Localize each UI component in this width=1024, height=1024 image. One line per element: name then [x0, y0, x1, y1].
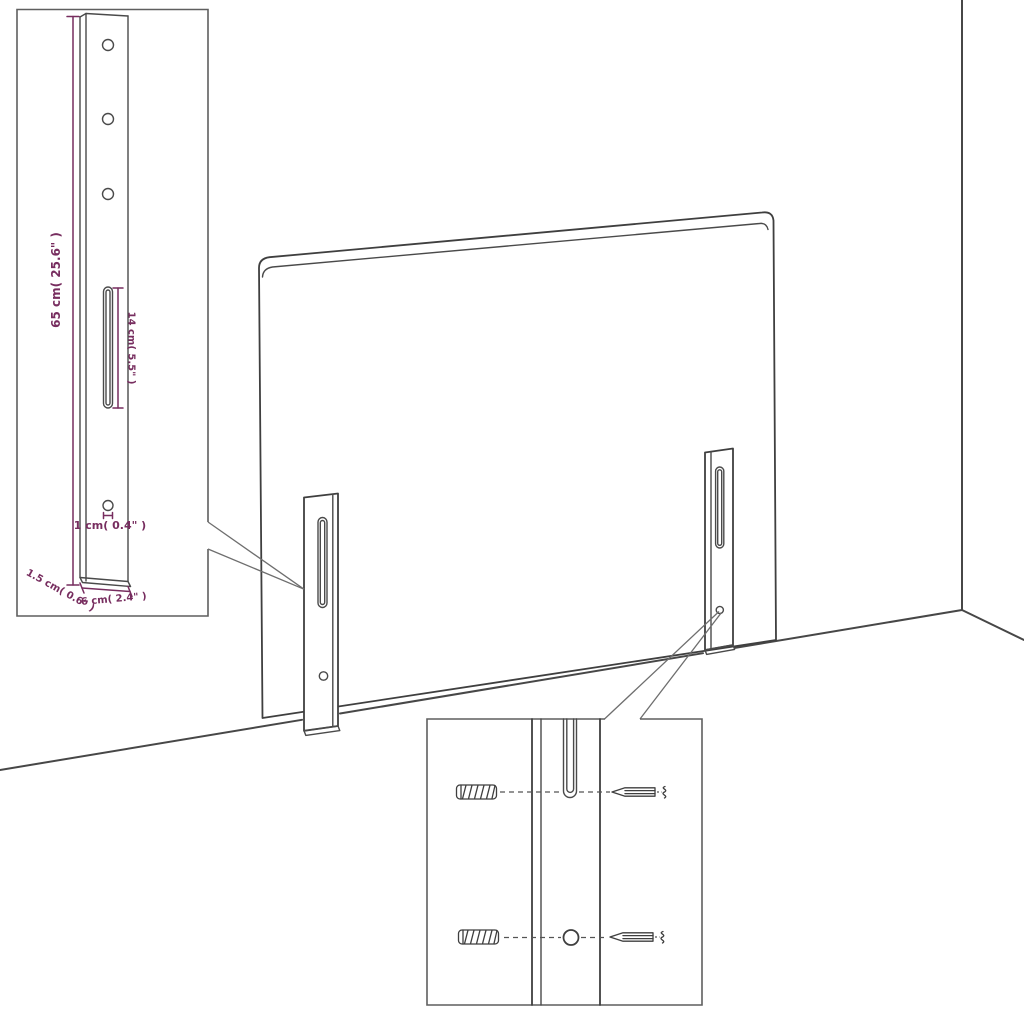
- floor-line-left: [0, 720, 302, 770]
- mounting-inset-background: [427, 719, 702, 1005]
- headboard-dimension-diagram: 65 cm( 25.6" ) 14 cm( 5.5" ) 1 cm( 0.4" …: [0, 0, 1024, 1024]
- dimension-slot-length-label: 14 cm( 5.5" ): [126, 312, 137, 385]
- headboard-right-leg: [705, 449, 735, 655]
- dimension-hole-diameter-label: 1 cm( 0.4" ): [74, 519, 146, 532]
- floor-line-right: [962, 610, 1024, 640]
- dimension-total-height-label: 65 cm( 25.6" ): [49, 232, 63, 328]
- diagram-canvas: 65 cm( 25.6" ) 14 cm( 5.5" ) 1 cm( 0.4" …: [0, 0, 1024, 1024]
- right-leg-body: [705, 449, 733, 651]
- headboard-left-leg: [304, 494, 340, 736]
